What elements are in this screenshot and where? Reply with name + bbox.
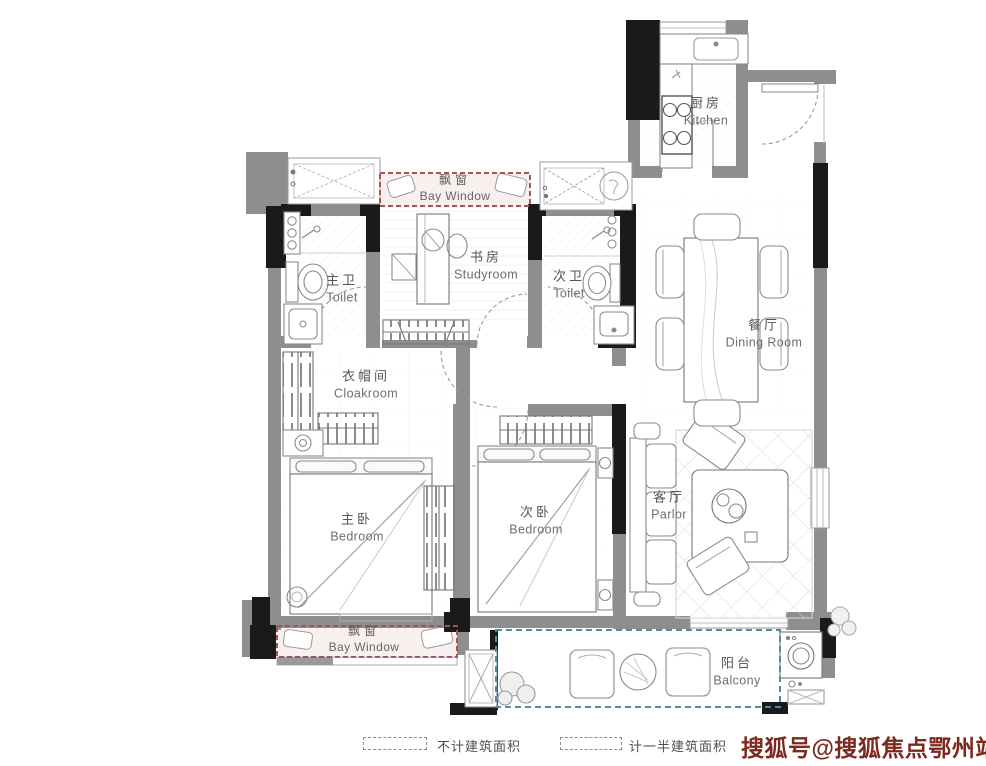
entry-door-leaf (762, 84, 824, 145)
watermark-sohu: 搜狐号@搜狐焦点鄂州站 (741, 729, 986, 763)
master-bed (283, 430, 454, 621)
floor-plan: 厨房 Kitchen 餐厅 Dining Room 主卫 Toilet 书房 S… (0, 0, 986, 766)
ac-platform-top-left (288, 158, 380, 204)
legend-swatch-excluded-area (363, 737, 427, 750)
parlor-furniture (630, 409, 812, 618)
legend-label-excluded-area: 不计建筑面积 (437, 736, 521, 755)
plant-right (828, 607, 856, 636)
plant (498, 672, 535, 705)
washing-machine (780, 632, 822, 678)
floor-plan-canvas (0, 0, 986, 766)
legend-label-half-area: 计一半建筑面积 (629, 736, 727, 755)
right-wall-window (811, 468, 829, 528)
legend-swatch-half-area (560, 737, 622, 750)
sliding-window-balcony (690, 618, 788, 628)
bay-window-top-area (380, 173, 530, 206)
ac-platform-top-right (540, 162, 632, 210)
duct-shaft (465, 650, 497, 707)
bay-window-bottom-area (277, 625, 457, 665)
